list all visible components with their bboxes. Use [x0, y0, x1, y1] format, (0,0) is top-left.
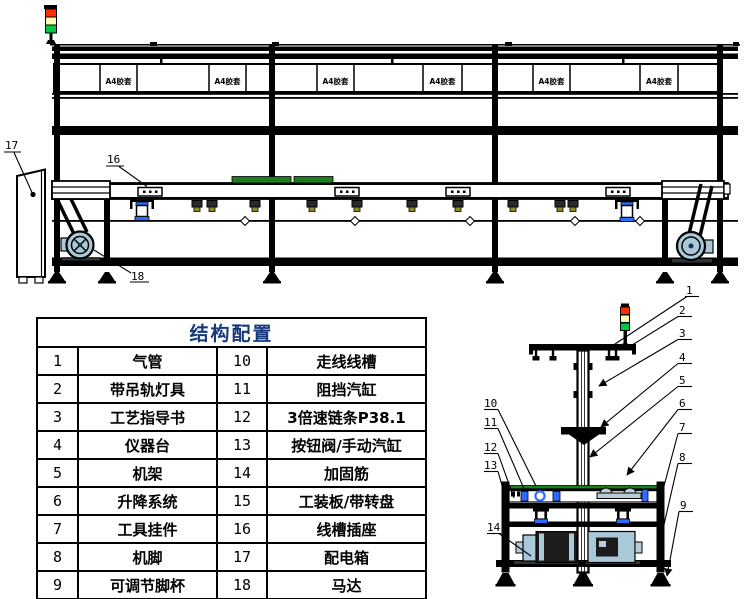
part-number-cell: 9 — [37, 571, 78, 599]
part-name-cell: 马达 — [267, 571, 426, 599]
callout-4-label: 4 — [679, 351, 686, 364]
parts-table: 结构配置 1 气管 10 走线线槽 2 带吊轨灯具 11 阻挡汽缸 3 工艺指导… — [36, 317, 427, 599]
callout-16-label: 16 — [107, 153, 120, 166]
a4-sleeve-label: A4胶套 — [214, 76, 241, 86]
table-row: 6 升降系统 15 工装板/带转盘 — [37, 487, 426, 515]
part-number-cell: 15 — [217, 487, 267, 515]
part-number-cell: 17 — [217, 543, 267, 571]
table-row: 9 可调节脚杯 18 马达 — [37, 571, 426, 599]
callout-5-label: 5 — [679, 374, 686, 387]
instrument-shelf — [561, 427, 606, 445]
motor-left — [58, 199, 100, 261]
signal-tower-light — [620, 304, 630, 348]
part-name-cell: 工装板/带转盘 — [267, 487, 426, 515]
part-number-cell: 13 — [217, 431, 267, 459]
part-number-cell: 18 — [217, 571, 267, 599]
technical-drawing-page: A4胶套 A4胶套 A4胶套 A4胶套 A4胶套 A4胶套 — [0, 0, 744, 599]
end-view-drawing: 1 2 3 4 5 6 7 8 9 — [484, 284, 699, 587]
part-name-cell: 走线线槽 — [267, 347, 426, 375]
part-name-cell: 带吊轨灯具 — [78, 375, 217, 403]
callout-1-label: 1 — [686, 284, 693, 297]
a4-sleeve-label: A4胶套 — [538, 76, 565, 86]
machine-feet — [48, 272, 729, 284]
part-name-cell: 仪器台 — [78, 431, 217, 459]
part-name-cell: 阻挡汽缸 — [267, 375, 426, 403]
part-number-cell: 12 — [217, 403, 267, 431]
part-name-cell: 机架 — [78, 459, 217, 487]
part-name-cell: 按钮阀/手动汽缸 — [267, 431, 426, 459]
part-name-cell: 气管 — [78, 347, 217, 375]
document-panel-band: A4胶套 A4胶套 A4胶套 A4胶套 A4胶套 A4胶套 — [54, 64, 720, 92]
a4-sleeve-label: A4胶套 — [105, 76, 132, 86]
callout-9-label: 9 — [680, 499, 687, 512]
support-bolts — [192, 201, 578, 212]
part-number-cell: 16 — [217, 515, 267, 543]
pallet-plate — [294, 177, 333, 184]
part-name-cell: 工具挂件 — [78, 515, 217, 543]
part-name-cell: 机脚 — [78, 543, 217, 571]
table-row: 3 工艺指导书 12 3倍速链条P38.1 — [37, 403, 426, 431]
pallet-plate — [232, 177, 291, 184]
a4-sleeve-label: A4胶套 — [429, 76, 456, 86]
callout-14-label: 14 — [487, 521, 501, 534]
callout-6-label: 6 — [679, 397, 686, 410]
table-row: 1 气管 10 走线线槽 — [37, 347, 426, 375]
part-number-cell: 10 — [217, 347, 267, 375]
part-name-cell: 升降系统 — [78, 487, 217, 515]
signal-tower-light — [44, 5, 57, 44]
callout-2-label: 2 — [679, 304, 686, 317]
callout-3-label: 3 — [679, 327, 686, 340]
part-number-cell: 11 — [217, 375, 267, 403]
part-name-cell: 线槽插座 — [267, 515, 426, 543]
part-number-cell: 4 — [37, 431, 78, 459]
part-number-cell: 14 — [217, 459, 267, 487]
hanger-hook-icon — [533, 351, 620, 361]
callout-18-label: 18 — [131, 270, 144, 283]
part-name-cell: 加固筋 — [267, 459, 426, 487]
parts-table-title: 结构配置 — [37, 318, 426, 347]
part-number-cell: 2 — [37, 375, 78, 403]
part-name-cell: 3倍速链条P38.1 — [267, 403, 426, 431]
part-number-cell: 1 — [37, 347, 78, 375]
a4-sleeve-label: A4胶套 — [322, 76, 349, 86]
cabinet-dot — [30, 192, 35, 197]
top-rail — [50, 42, 740, 67]
part-number-cell: 8 — [37, 543, 78, 571]
callout-11-label: 11 — [484, 416, 497, 429]
table-row: 4 仪器台 13 按钮阀/手动汽缸 — [37, 431, 426, 459]
part-name-cell: 工艺指导书 — [78, 403, 217, 431]
a4-sleeve-label: A4胶套 — [646, 76, 673, 86]
callout-7-label: 7 — [679, 421, 686, 434]
conveyor-beam — [52, 177, 730, 200]
part-number-cell: 6 — [37, 487, 78, 515]
part-number-cell: 3 — [37, 403, 78, 431]
table-row: 2 带吊轨灯具 11 阻挡汽缸 — [37, 375, 426, 403]
table-row: 5 机架 14 加固筋 — [37, 459, 426, 487]
part-name-cell: 可调节脚杯 — [78, 571, 217, 599]
side-view-drawing: A4胶套 A4胶套 A4胶套 A4胶套 A4胶套 A4胶套 — [4, 5, 740, 284]
part-name-cell: 配电箱 — [267, 543, 426, 571]
callout-17-label: 17 — [5, 139, 18, 152]
frame-rails — [52, 93, 738, 266]
end-view-callouts-left: 10 11 12 13 14 — [484, 397, 536, 556]
table-row: 7 工具挂件 16 线槽插座 — [37, 515, 426, 543]
table-row: 8 机脚 17 配电箱 — [37, 543, 426, 571]
distribution-cabinet — [17, 170, 45, 284]
callout-12-label: 12 — [484, 441, 497, 454]
callout-10-label: 10 — [484, 397, 497, 410]
part-number-cell: 5 — [37, 459, 78, 487]
part-number-cell: 7 — [37, 515, 78, 543]
machine-feet — [496, 573, 671, 587]
callout-8-label: 8 — [679, 451, 686, 464]
callout-13-label: 13 — [484, 459, 497, 472]
rotary-disc-icon — [535, 491, 544, 500]
